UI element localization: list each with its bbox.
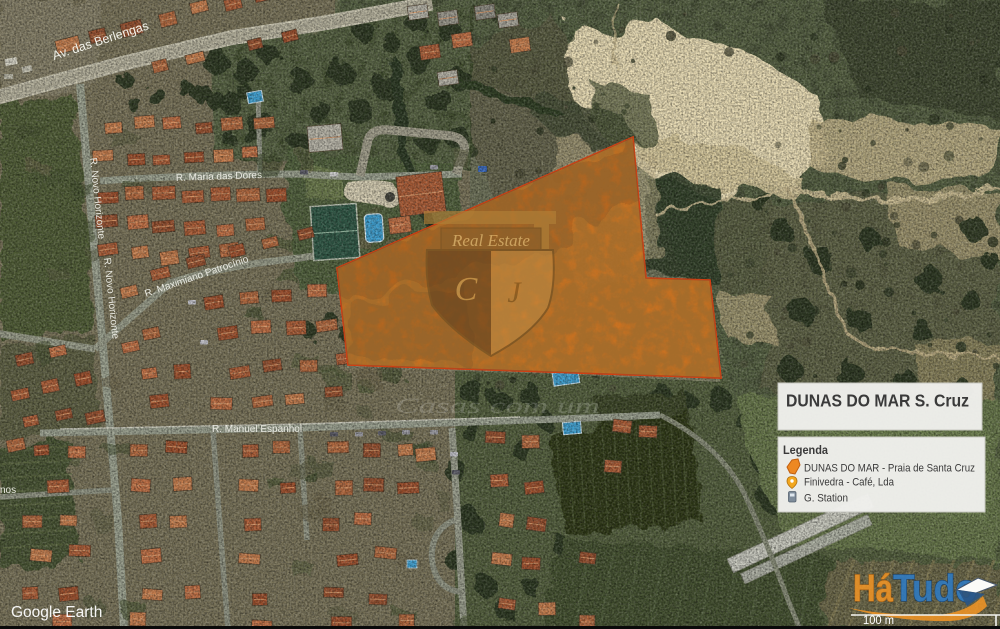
- svg-text:Legenda: Legenda: [783, 445, 829, 457]
- svg-text:G. Station: G. Station: [804, 493, 848, 505]
- svg-text:nos: nos: [0, 485, 16, 496]
- svg-text:R. Manuel Espanhol: R. Manuel Espanhol: [212, 424, 302, 435]
- svg-text:100 m: 100 m: [863, 615, 894, 627]
- svg-text:DUNAS DO MAR - Praia de Santa: DUNAS DO MAR - Praia de Santa Cruz: [804, 463, 975, 475]
- svg-text:Finivedra - Café, Lda: Finivedra - Café, Lda: [804, 477, 895, 489]
- svg-text:Casas com um: Casas com um: [395, 393, 600, 418]
- svg-text:DUNAS DO MAR S. Cruz: DUNAS DO MAR S. Cruz: [786, 391, 969, 411]
- svg-text:Real Estate: Real Estate: [451, 231, 530, 250]
- svg-text:J: J: [507, 276, 522, 309]
- svg-text:Google Earth: Google Earth: [11, 604, 102, 621]
- svg-text:Há: Há: [853, 568, 894, 610]
- svg-text:C: C: [455, 271, 478, 308]
